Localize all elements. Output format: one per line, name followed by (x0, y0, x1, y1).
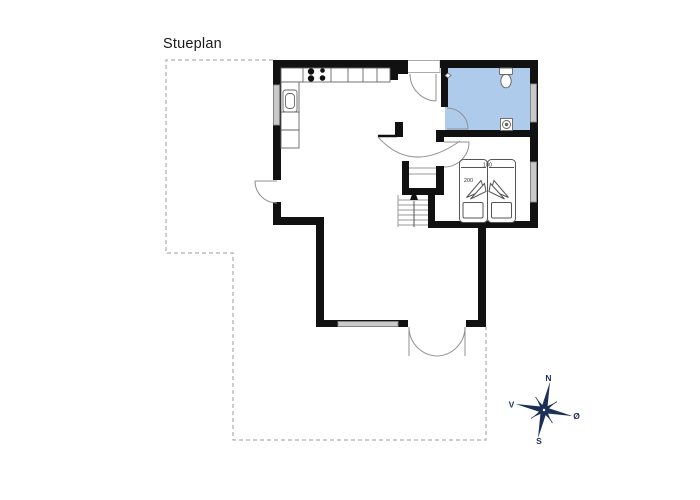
wall-bathroom-bottom (436, 130, 537, 137)
floorplan-page: Stueplan (0, 0, 700, 500)
window (338, 322, 398, 327)
floor-drain-icon (501, 119, 513, 131)
sink-icon (283, 90, 297, 112)
compass-label-south: S (536, 436, 542, 446)
compass-label-east: Ø (573, 411, 580, 421)
double-bed (460, 160, 516, 223)
side-door (255, 181, 277, 203)
wall-top-main (273, 60, 404, 68)
duvet (492, 203, 512, 219)
entry-recess (404, 61, 440, 73)
floorplan-drawing: 180 200 N S (0, 0, 700, 500)
patio-double-door (409, 327, 465, 356)
wall-bathroom-left (441, 60, 448, 107)
wall-hall-stub-upper (390, 60, 398, 80)
wall-livingroom-right (478, 228, 486, 327)
duvet (463, 203, 483, 219)
wall-stair-niche-bottom (402, 188, 443, 195)
wall-bathroom-top (440, 60, 537, 68)
window (274, 85, 280, 125)
wall-left-lower (273, 202, 281, 222)
compass-rose: N S V Ø (509, 373, 581, 446)
entry-door (410, 74, 436, 101)
compass-star (510, 376, 579, 445)
hall-opening-arc (378, 137, 460, 157)
wall-bedroom-left-upper (436, 130, 444, 142)
window (531, 162, 537, 202)
wall-livingroom-left (316, 222, 324, 327)
toilet-icon (500, 68, 513, 88)
compass-label-north: N (545, 373, 551, 383)
bathroom-room (445, 65, 532, 131)
wall-bottom-right (466, 320, 486, 327)
bed-label-200: 200 (464, 178, 473, 184)
compass-label-west: V (509, 400, 515, 410)
bed-label-180: 180 (483, 163, 492, 169)
terrace-boundary (166, 60, 486, 440)
window (531, 84, 537, 122)
